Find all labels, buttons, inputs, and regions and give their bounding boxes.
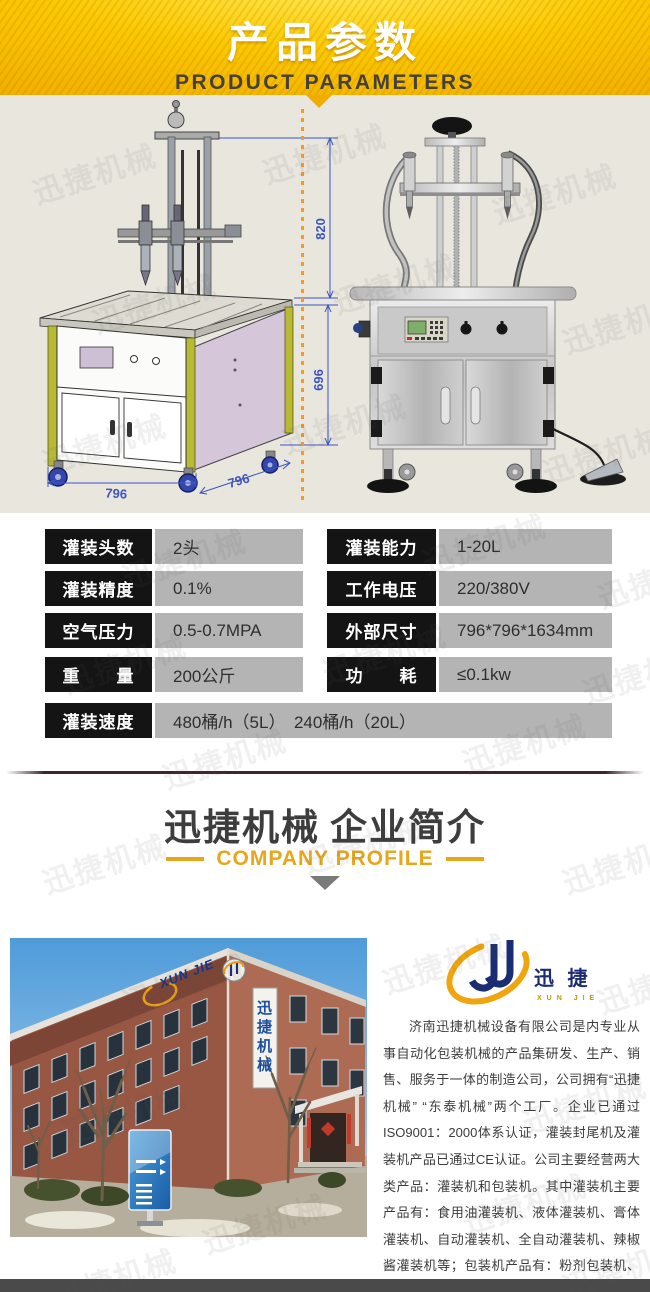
param-label: 功 耗 [327, 657, 436, 692]
param-label: 灌装能力 [327, 529, 436, 564]
dimension-label-height-lower: 696 [311, 369, 326, 391]
dimension-label-depth: 796 [226, 470, 251, 491]
param-value: 0.1% [155, 571, 303, 606]
company-brand-name: 迅捷机械 [164, 807, 320, 848]
param-value: 0.5-0.7MPA [155, 613, 303, 648]
param-value: 2头 [155, 529, 303, 564]
param-value: ≤0.1kw [439, 657, 612, 692]
logo-en-text: XUN JIE [537, 995, 599, 1002]
param-value: 480桶/h（5L） 240桶/h（20L） [155, 703, 612, 738]
image-divider-dotted-line [301, 109, 304, 505]
cad-drawing: 820 696 796 796 [0, 95, 345, 513]
company-section-subtitle: COMPANY PROFILE [0, 847, 650, 871]
dimension-label-height-upper: 820 [313, 218, 328, 240]
param-label: 重 量 [45, 657, 152, 692]
page-subtitle: PRODUCT PARAMETERS [0, 71, 650, 95]
param-value: 220/380V [439, 571, 612, 606]
param-label: 空气压力 [45, 613, 152, 648]
company-section-title: 迅捷机械企业简介 [0, 797, 650, 851]
down-arrow-icon [310, 876, 340, 890]
param-label: 灌装速度 [45, 703, 152, 738]
subtitle-dash-left [166, 857, 204, 861]
company-subtitle-text: COMPANY PROFILE [216, 847, 433, 871]
logo-cn-text: 迅 捷 [534, 966, 592, 990]
param-value: 200公斤 [155, 657, 303, 692]
param-label: 工作电压 [327, 571, 436, 606]
factory-photo [10, 938, 367, 1237]
param-label: 外部尺寸 [327, 613, 436, 648]
param-value: 1-20L [439, 529, 612, 564]
company-title-text: 企业简介 [330, 807, 486, 848]
param-value: 796*796*1634mm [439, 613, 612, 648]
param-label: 灌装精度 [45, 571, 152, 606]
section-header-product-parameters: 产品参数 PRODUCT PARAMETERS [0, 0, 650, 95]
footer-bar [0, 1279, 650, 1292]
building-sign-vertical: 迅捷机械 [253, 992, 273, 1084]
page-title: 产品参数 [0, 0, 650, 70]
company-logo: 迅 捷 XUN JIE [438, 930, 608, 1014]
section-divider-line [6, 771, 644, 774]
machine-images-band: 820 696 796 796 [0, 95, 650, 513]
param-label: 灌装头数 [45, 529, 152, 564]
header-notch-icon [306, 95, 332, 108]
company-profile-text: 济南迅捷机械设备有限公司是内专业从事自动化包装机械的产品集研发、生产、销售、服务… [383, 1014, 640, 1292]
machine-photo [345, 95, 650, 513]
product-detail-page: 产品参数 PRODUCT PARAMETERS [0, 0, 650, 1292]
dimension-label-width: 796 [105, 485, 127, 501]
subtitle-dash-right [446, 857, 484, 861]
